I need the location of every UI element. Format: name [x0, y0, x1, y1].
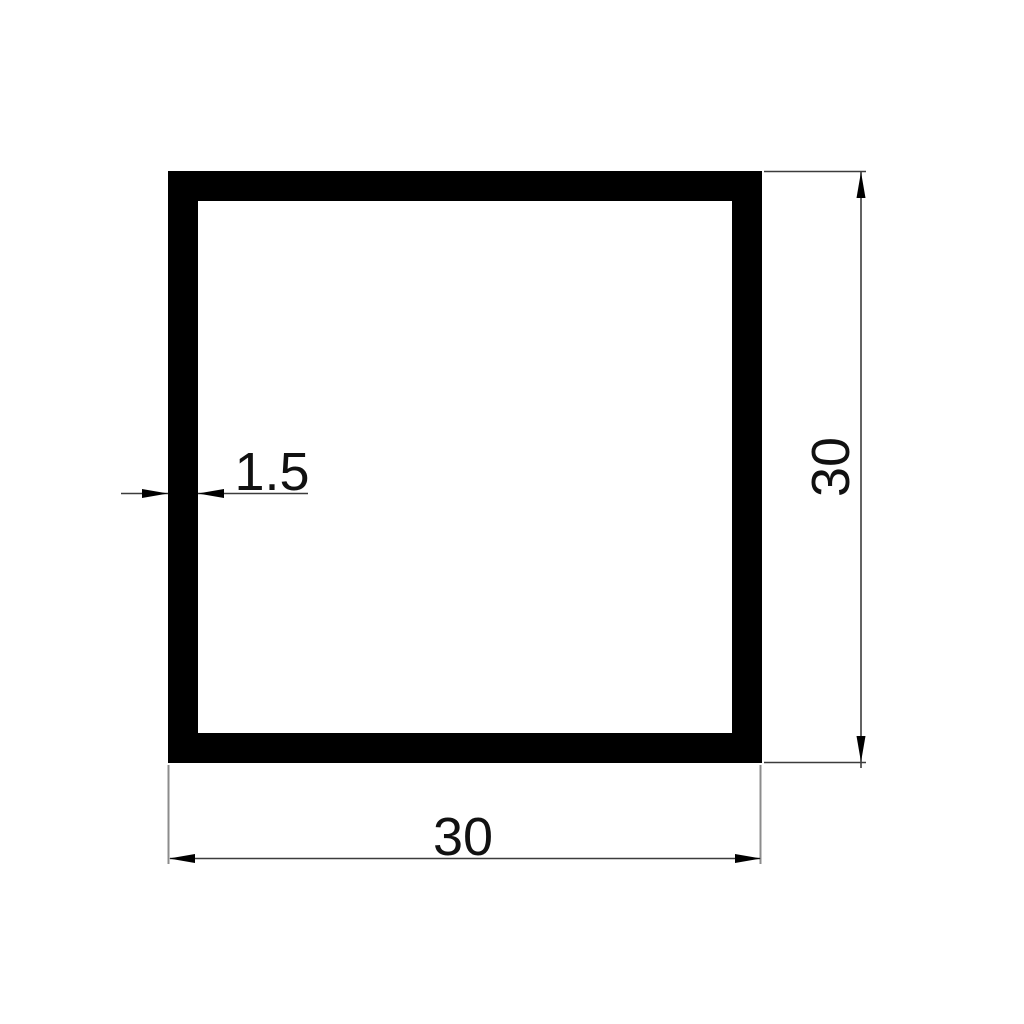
width-arrow-left-icon: [169, 854, 195, 863]
wall-thickness-dimension: 1.5: [121, 442, 310, 502]
width-dimension-label: 30: [433, 807, 493, 867]
height-dimension: 30: [764, 172, 866, 769]
width-arrow-right-icon: [735, 854, 761, 863]
technical-drawing-canvas: 30 30 1.5: [0, 0, 1024, 1024]
height-dimension-label: 30: [801, 437, 861, 497]
height-arrow-down-icon: [857, 736, 866, 762]
wall-arrow-right-icon: [142, 489, 168, 498]
wall-thickness-label: 1.5: [234, 442, 309, 502]
width-dimension: 30: [169, 765, 762, 867]
square-tube-drawing: 30 30 1.5: [0, 0, 1024, 1024]
wall-arrow-left-icon: [198, 489, 224, 498]
height-arrow-up-icon: [857, 172, 866, 198]
